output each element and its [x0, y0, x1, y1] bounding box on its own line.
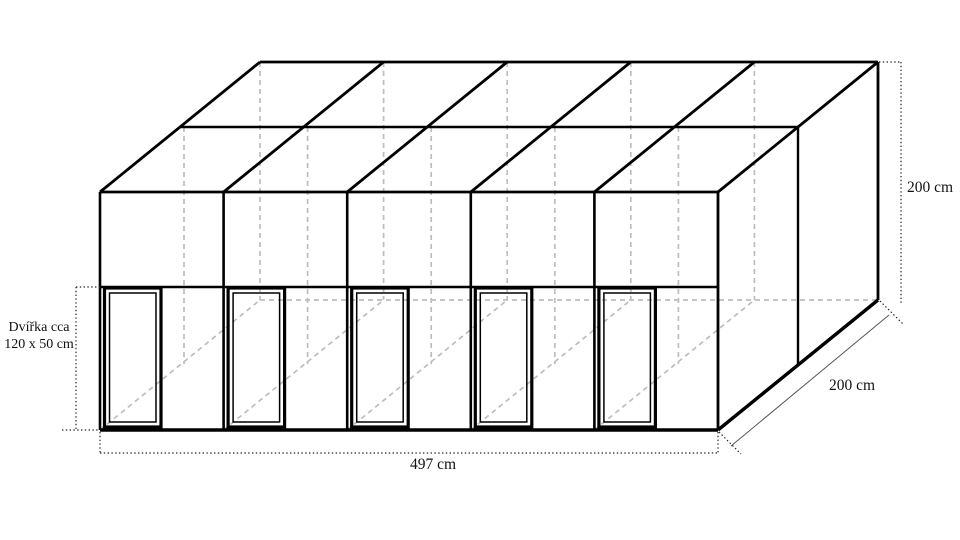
height-dimension-label: 200 cm — [907, 179, 953, 196]
door-inner-frame — [233, 293, 280, 422]
door-inner-frame — [357, 293, 404, 422]
width-dimension-label: 497 cm — [410, 456, 456, 473]
doors-group — [105, 288, 656, 427]
door-outer-frame — [228, 288, 285, 427]
hidden-partition-floor-edge — [224, 300, 384, 430]
depth-lower-tick — [719, 432, 741, 454]
hidden-partition-floor-edge — [347, 300, 507, 430]
door-outer-frame — [475, 288, 532, 427]
door-size-label-line1: Dvířka cca — [8, 320, 70, 335]
depth-upper-tick — [880, 301, 903, 324]
hidden-partition-floor-edge — [100, 300, 260, 430]
hidden-partition-floor-edge — [594, 300, 754, 430]
cage-3d-diagram: Dvířka cca 120 x 50 cm 497 cm 200 cm 200… — [0, 0, 960, 540]
diagram-canvas: Dvířka cca 120 x 50 cm 497 cm 200 cm 200… — [0, 0, 960, 540]
door-inner-frame — [604, 293, 651, 422]
hidden-edges-group — [100, 62, 878, 430]
depth-dimension-label: 200 cm — [829, 377, 875, 394]
door-inner-frame — [110, 293, 157, 422]
door-outer-frame — [352, 288, 409, 427]
door-inner-frame — [480, 293, 527, 422]
hidden-partition-floor-edge — [471, 300, 631, 430]
door-size-label-line2: 120 x 50 cm — [4, 337, 74, 352]
structure-edges-group — [100, 62, 878, 430]
door-outer-frame — [599, 288, 656, 427]
door-outer-frame — [105, 288, 162, 427]
